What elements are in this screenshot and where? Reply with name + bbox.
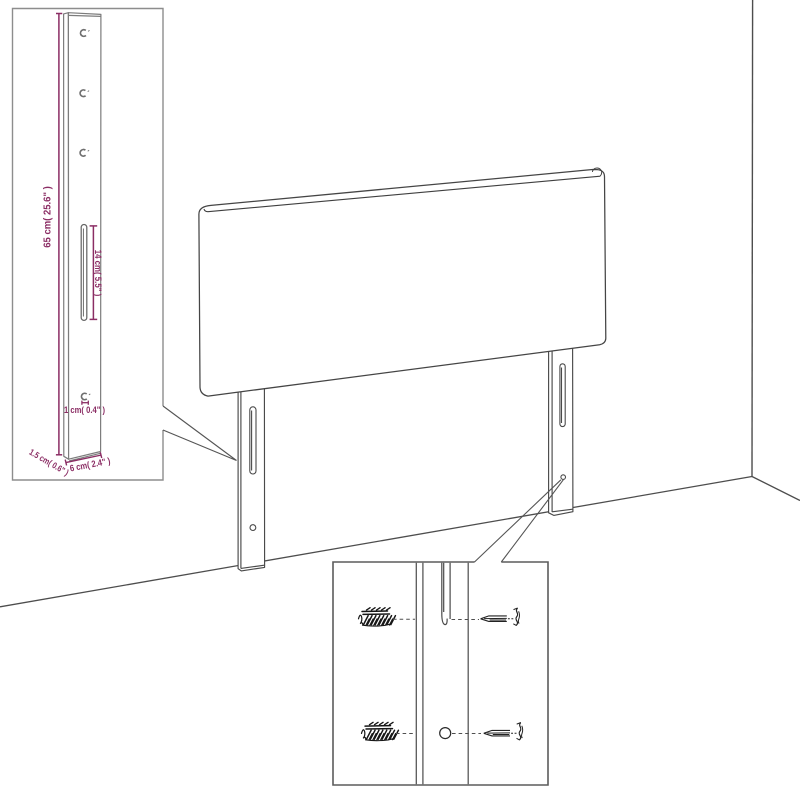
svg-text:1 cm( 0.4" ): 1 cm( 0.4" ) xyxy=(64,405,105,415)
svg-text:65 cm( 25.6" ): 65 cm( 25.6" ) xyxy=(43,186,54,248)
svg-text:14 cm( 5.5" ): 14 cm( 5.5" ) xyxy=(93,250,103,297)
